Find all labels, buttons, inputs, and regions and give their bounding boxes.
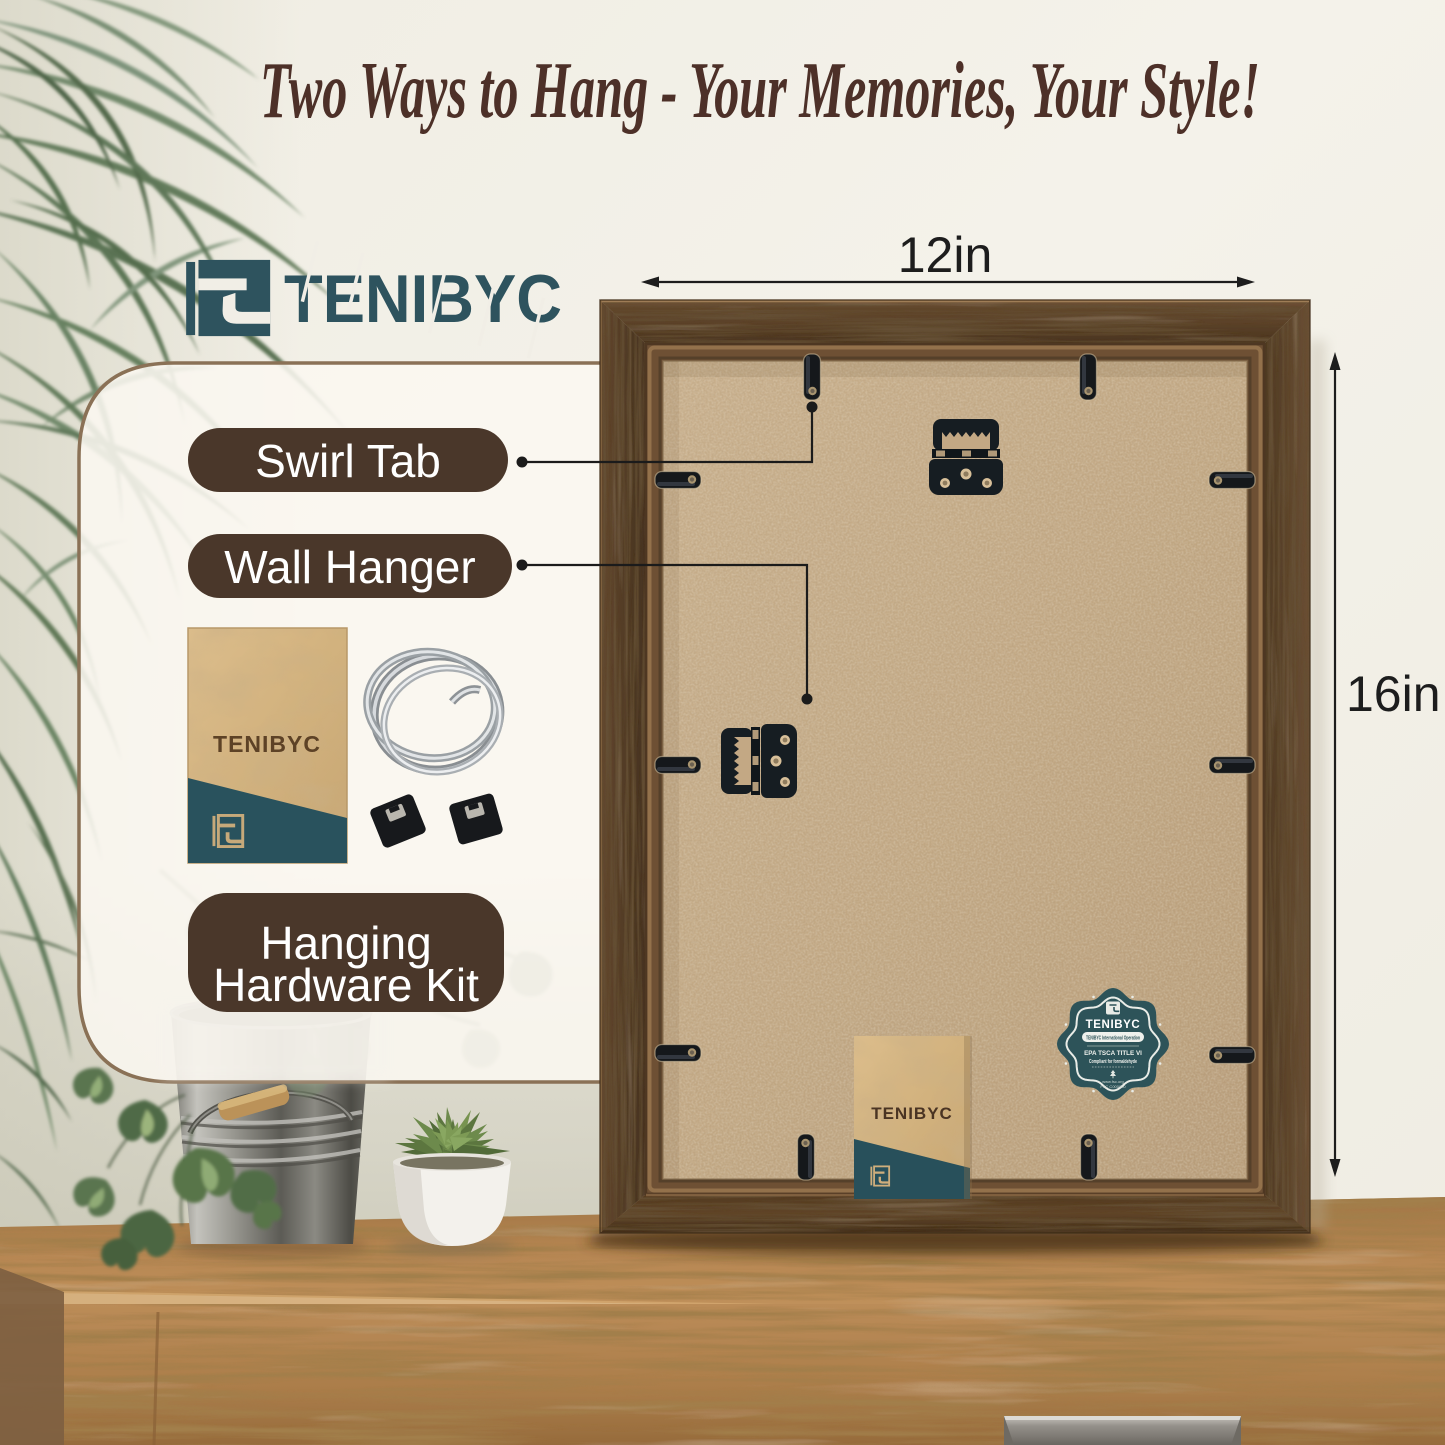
- svg-text:TENIBYC: TENIBYC: [284, 261, 562, 337]
- svg-text:EPA TSCA TITLE VI: EPA TSCA TITLE VI: [1084, 1050, 1142, 1057]
- svg-text:Hardware Kit: Hardware Kit: [213, 959, 479, 1011]
- svg-text:TENIBYC: TENIBYC: [1086, 1019, 1141, 1031]
- svg-text:16in: 16in: [1346, 666, 1441, 722]
- svg-text:TENIBYC International Operatio: TENIBYC International Operation: [1086, 1036, 1140, 1042]
- svg-text:Compliant for formaldehyde: Compliant for formaldehyde: [1089, 1059, 1137, 1065]
- svg-text:12in: 12in: [898, 227, 993, 283]
- svg-text:Two Ways to Hang - Your Memori: Two Ways to Hang - Your Memories, Your S…: [260, 47, 1260, 135]
- svg-text:Swirl Tab: Swirl Tab: [255, 435, 441, 487]
- svg-text:TENIBYC: TENIBYC: [871, 1104, 953, 1123]
- svg-text:TENIBYC: TENIBYC: [213, 731, 321, 757]
- svg-text:FSC C000000: FSC C000000: [1100, 1084, 1126, 1089]
- svg-text:Wall Hanger: Wall Hanger: [224, 541, 475, 593]
